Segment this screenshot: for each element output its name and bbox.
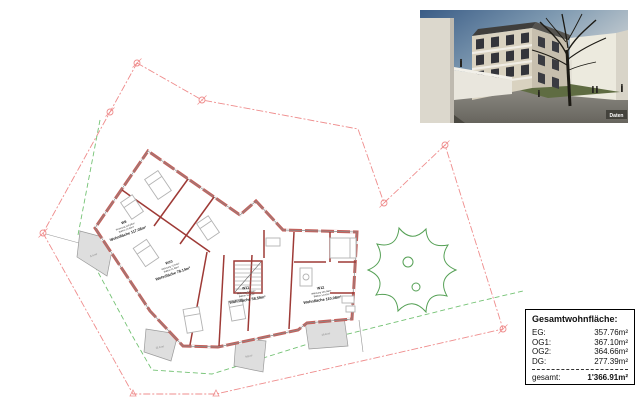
row-label: DG: — [532, 357, 546, 367]
survey-point-icon — [106, 108, 115, 117]
summary-row-eg: EG: 357.76m² — [532, 328, 628, 338]
boundary-mark-icon — [213, 390, 219, 396]
survey-point-icon — [39, 229, 48, 238]
survey-point-icon — [499, 325, 508, 334]
sink-icon — [346, 306, 355, 312]
boundary-mark-icon — [130, 390, 136, 396]
bed-icon — [330, 238, 356, 258]
summary-title: Gesamtwohnfläche: — [532, 314, 628, 324]
row-value: 364.66m² — [594, 347, 628, 357]
row-label: OG1: — [532, 338, 551, 348]
survey-point-icon — [441, 141, 450, 150]
row-value: 357.76m² — [594, 328, 628, 338]
survey-point-icon — [380, 199, 389, 208]
survey-point-icon — [133, 59, 142, 68]
summary-total-row: gesamt: 1'366.91m² — [532, 372, 628, 383]
bath-icon — [342, 296, 354, 303]
total-label: gesamt: — [532, 372, 560, 383]
total-value: 1'366.91m² — [587, 372, 628, 383]
area-summary-table: Gesamtwohnfläche: EG: 357.76m² OG1: 367.… — [525, 309, 635, 385]
row-label: EG: — [532, 328, 546, 338]
summary-row-og1: OG1: 367.10m² — [532, 338, 628, 348]
summary-divider — [532, 369, 628, 370]
rendering-image: Daten — [420, 10, 628, 123]
survey-point-icon — [198, 96, 207, 105]
building-footprint: W9 Wohnung 110.08m² Balkon 14.00m² Wohnf… — [95, 151, 357, 347]
foreground-building — [420, 18, 454, 123]
row-label: OG2: — [532, 347, 551, 357]
sofa-icon — [266, 238, 280, 246]
row-value: 277.39m² — [594, 357, 628, 367]
summary-row-og2: OG2: 364.66m² — [532, 347, 628, 357]
summary-row-dg: DG: 277.39m² — [532, 357, 628, 367]
rendering-caption: Daten — [610, 113, 624, 119]
row-value: 367.10m² — [594, 338, 628, 348]
drawing-sheet: 5.4 m² 11.9 m² 9.8 m² 16.8 m² — [0, 0, 640, 402]
tree-symbol — [368, 228, 456, 312]
